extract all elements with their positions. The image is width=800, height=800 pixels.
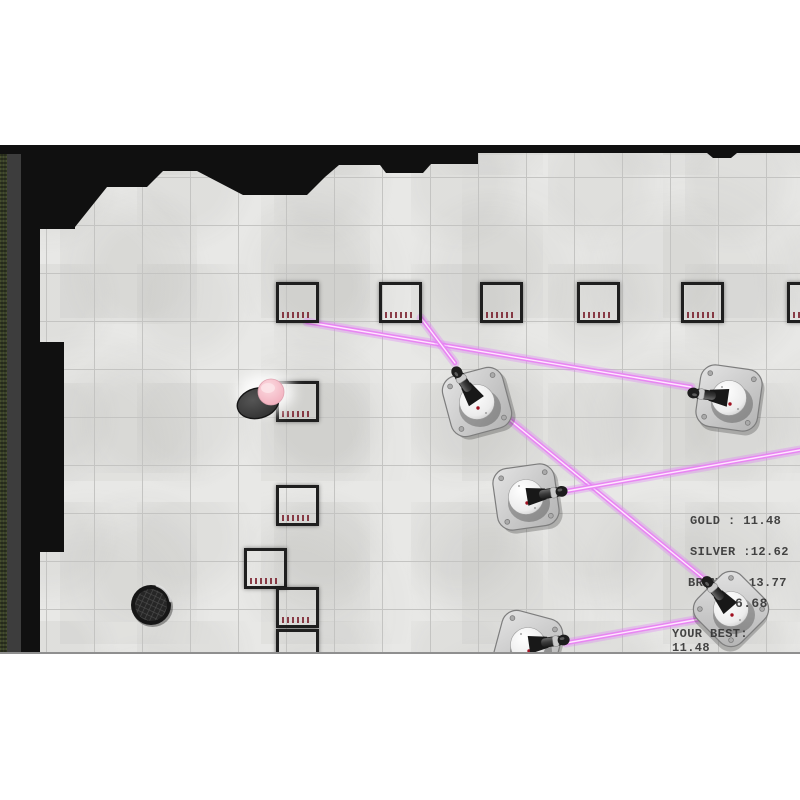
red-crate (244, 548, 287, 589)
screw-icon (542, 469, 547, 474)
hud-current-timer: 6.68 (735, 597, 768, 610)
red-crate (379, 282, 422, 323)
dome-rivet (520, 633, 522, 635)
turret-red-light (728, 402, 731, 405)
red-crate (480, 282, 523, 323)
laser-turret (435, 360, 519, 444)
laser-turret (486, 603, 570, 654)
red-crate (276, 587, 319, 628)
red-crate (276, 282, 319, 323)
screw-icon (751, 377, 756, 382)
page: GOLD : 11.48 SILVER :12.62 BRONZE :13.77… (0, 0, 800, 800)
hud-your-best-label: YOUR BEST: (672, 628, 748, 640)
hud-gold-time: GOLD : 11.48 (690, 515, 781, 527)
screw-icon (708, 370, 713, 375)
screw-icon (498, 476, 503, 481)
dome-rivet (739, 619, 741, 621)
turret-red-light (476, 406, 479, 409)
dome-rivet (721, 386, 723, 388)
turret-red-light (730, 613, 733, 616)
dome-rivet (737, 408, 739, 410)
red-crate (681, 282, 724, 323)
dome-rivet (518, 485, 520, 487)
laser-turret (687, 356, 771, 440)
dome-rivet (534, 507, 536, 509)
red-crate (787, 282, 800, 323)
screw-icon (701, 414, 706, 419)
laser-turret (484, 455, 568, 539)
dome-rivet (485, 412, 487, 414)
screw-icon (505, 519, 510, 524)
red-crate (276, 629, 319, 654)
hud-silver-time: SILVER :12.62 (690, 546, 789, 558)
player-head-highlight (261, 383, 275, 393)
player-character (217, 364, 307, 434)
red-crate (276, 485, 319, 526)
screw-icon (745, 420, 750, 425)
red-crate (577, 282, 620, 323)
hud-your-best-value: 11.48 (672, 642, 710, 654)
game-viewport[interactable]: GOLD : 11.48 SILVER :12.62 BRONZE :13.77… (0, 145, 800, 654)
screw-icon (548, 513, 553, 518)
laser-beam (567, 450, 800, 491)
laser-layer (0, 145, 800, 652)
